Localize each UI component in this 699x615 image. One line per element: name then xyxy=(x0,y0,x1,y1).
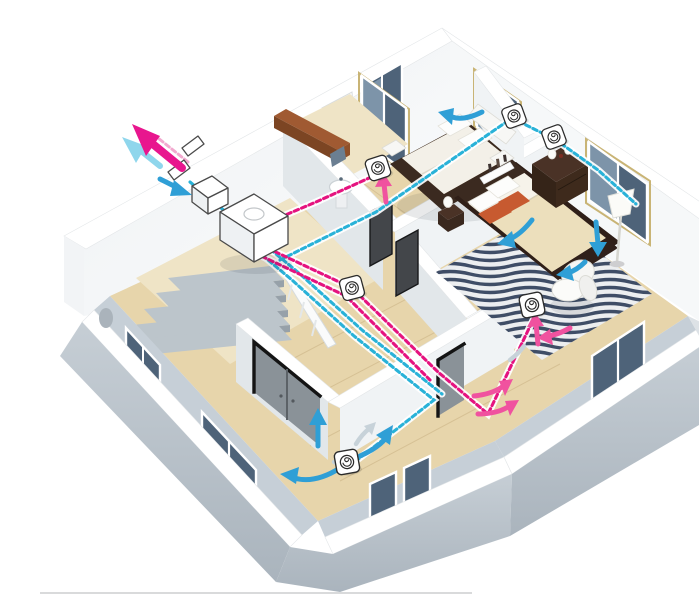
open-door-leaf-b xyxy=(396,230,418,296)
wall-grille-upper xyxy=(182,136,204,156)
bottom-rule xyxy=(40,592,472,594)
house-cutaway-svg xyxy=(40,16,699,599)
left-corner-edge xyxy=(64,236,84,316)
ventilation-cutaway-illustration xyxy=(40,16,699,599)
wall-recess xyxy=(99,308,113,328)
